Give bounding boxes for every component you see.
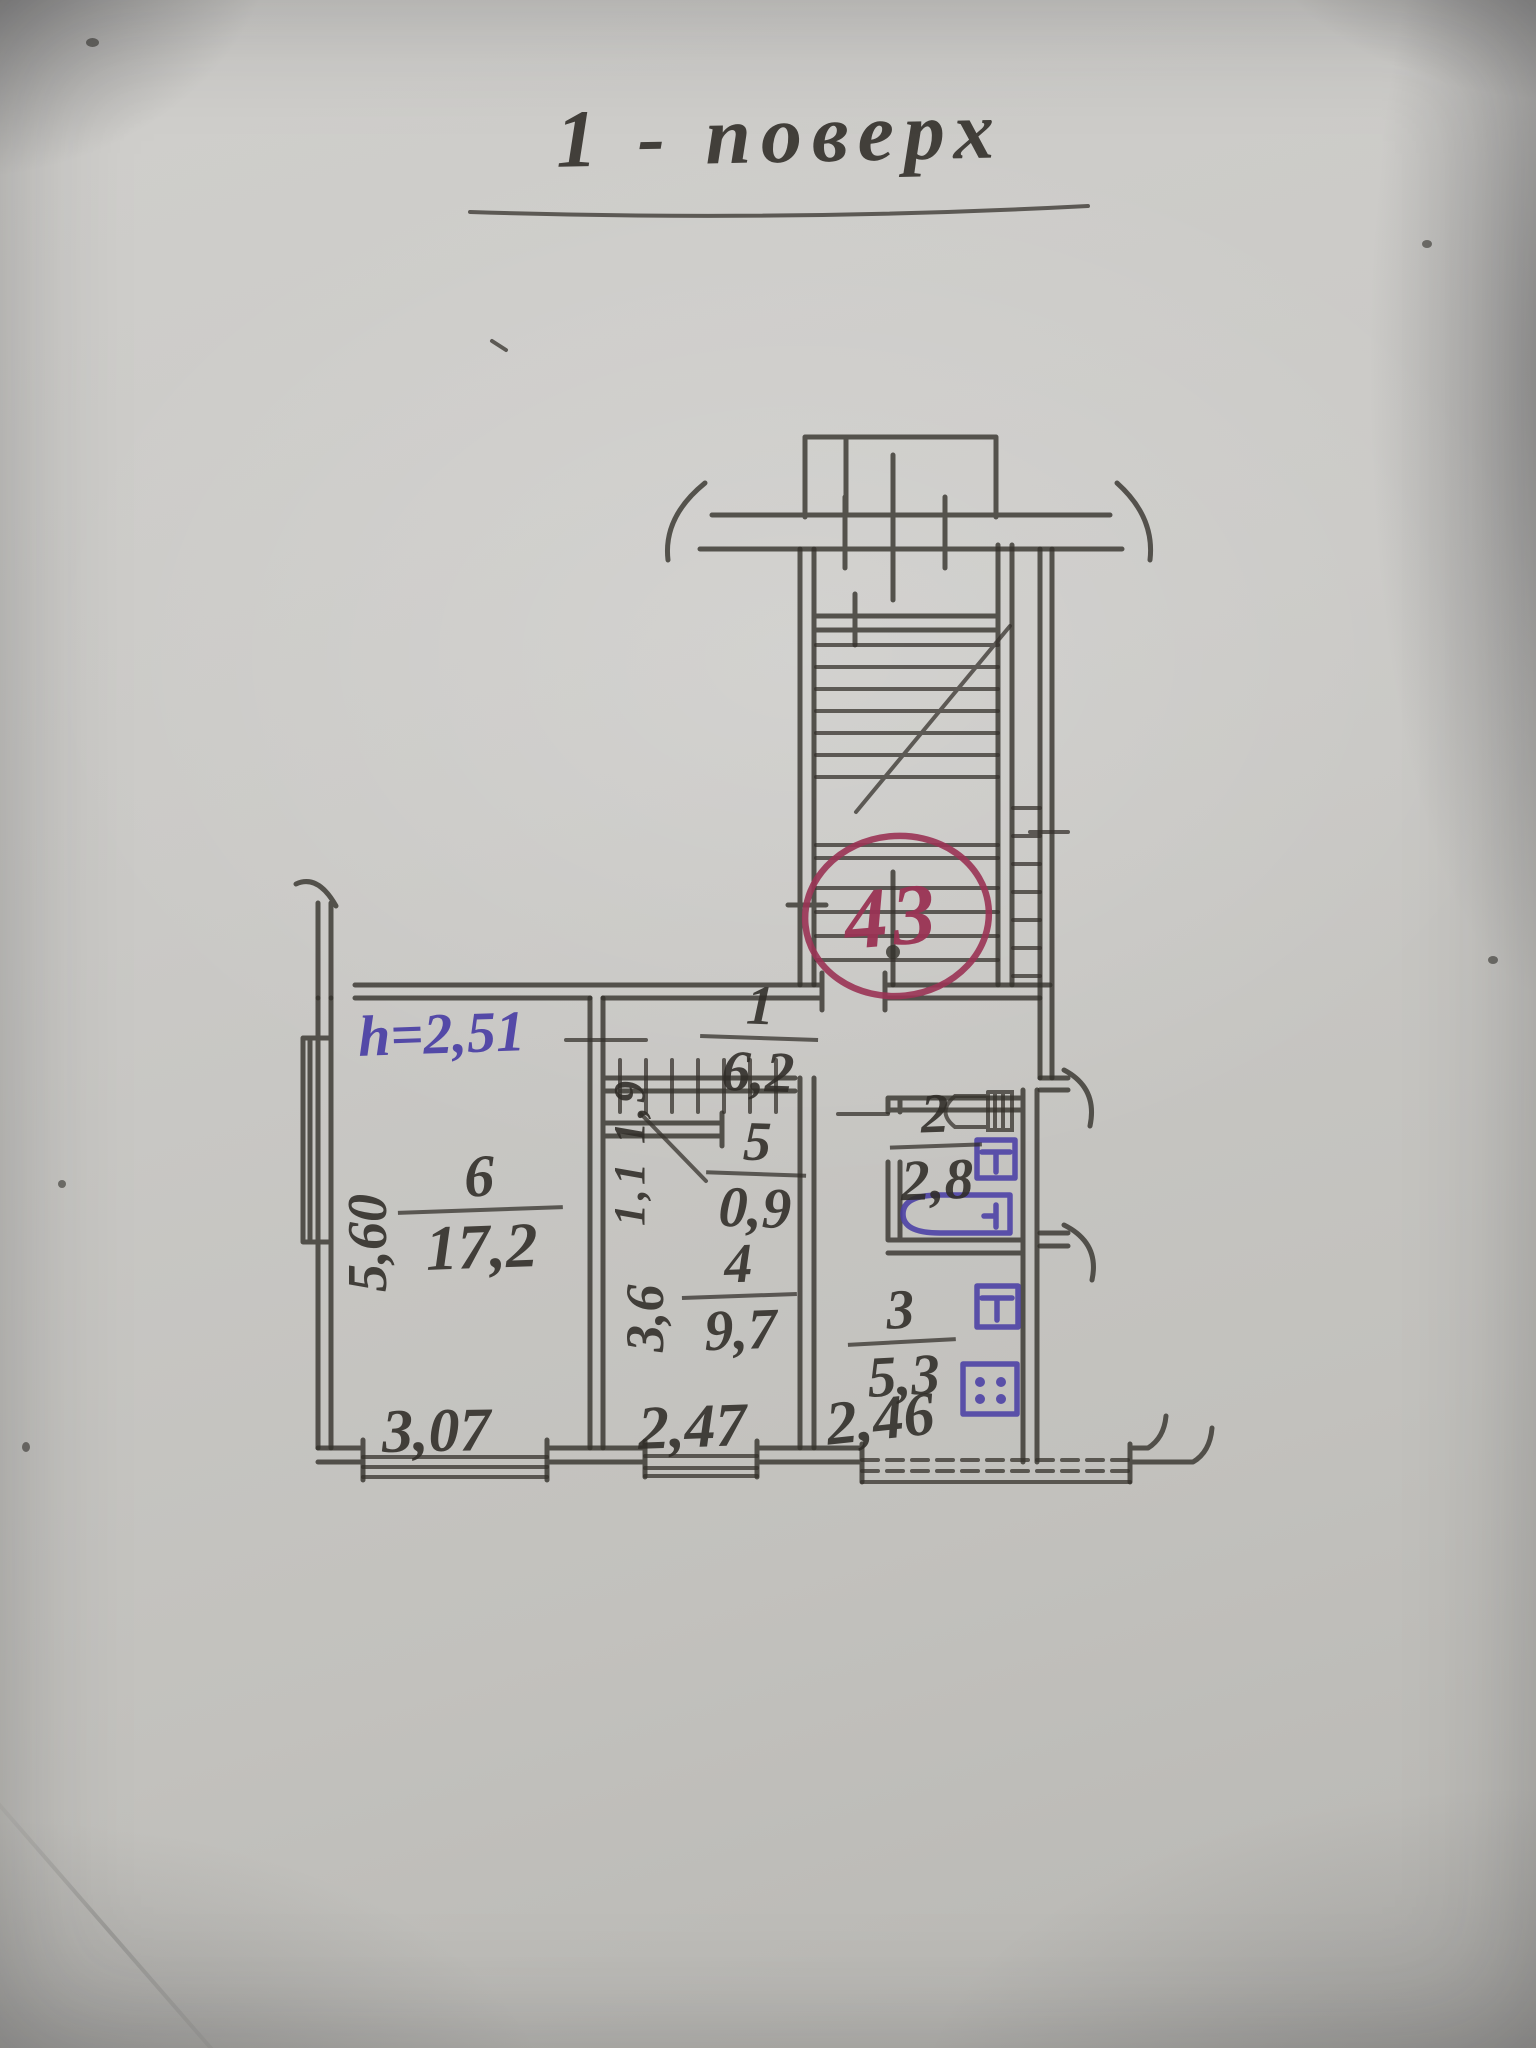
dimension-closet: 1,1 1,9 bbox=[604, 1077, 655, 1226]
dimension-bottom-left: 3,07 bbox=[381, 1395, 491, 1468]
paper-speck bbox=[1422, 240, 1432, 248]
dimension-bottom-middle: 2,47 bbox=[637, 1390, 748, 1465]
room-label-hallway: 1 6,2 bbox=[698, 978, 820, 1103]
paper-speck bbox=[58, 1180, 66, 1188]
room-label-living-room: 6 17,2 bbox=[396, 1145, 565, 1282]
room-label-bathroom: 2 2,8 bbox=[888, 1086, 984, 1210]
kitchen-sink-icon bbox=[977, 1286, 1018, 1327]
stove-icon bbox=[963, 1364, 1017, 1414]
dimension-left-wall: 5,60 bbox=[336, 1194, 400, 1292]
room-label-closet: 5 0,9 bbox=[704, 1114, 808, 1239]
room-label-room4: 4 9,7 bbox=[680, 1236, 799, 1361]
ceiling-height-note: h=2,51 bbox=[357, 997, 526, 1070]
paper-speck bbox=[22, 1442, 30, 1452]
scanned-floor-plan-photo: 1 - поверх 43 h=2,51 1 6,2 2 2,8 3 5,3 4… bbox=[0, 0, 1536, 2048]
dimension-room4-depth: 3,6 bbox=[614, 1285, 676, 1353]
paper-speck bbox=[86, 38, 99, 47]
stove-burners bbox=[975, 1377, 1006, 1404]
stray-pencil-mark bbox=[492, 341, 506, 350]
kitchen-window-dashes bbox=[862, 1460, 1130, 1471]
title-underline bbox=[470, 206, 1088, 216]
dimension-bottom-right: 2,46 bbox=[823, 1379, 938, 1461]
unit-number: 43 bbox=[840, 862, 944, 970]
paper-speck bbox=[1488, 956, 1498, 964]
page-title: 1 - поверх bbox=[459, 81, 1101, 188]
